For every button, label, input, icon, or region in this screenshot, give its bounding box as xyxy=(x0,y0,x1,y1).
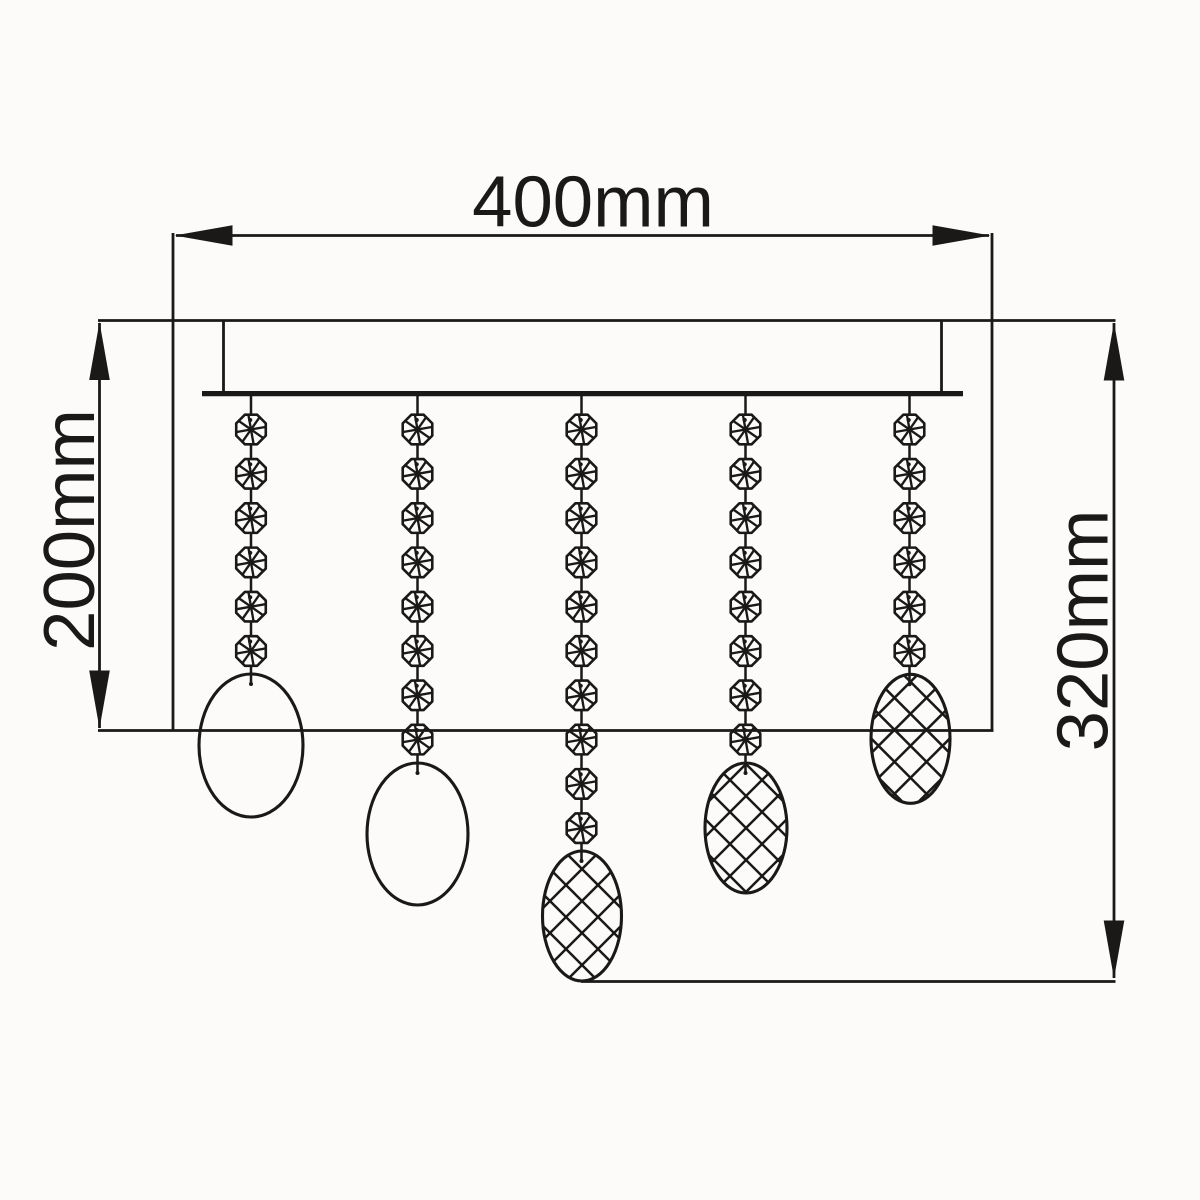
svg-text:200mm: 200mm xyxy=(29,409,110,651)
svg-text:320mm: 320mm xyxy=(1043,510,1124,752)
svg-text:400mm: 400mm xyxy=(472,162,714,243)
